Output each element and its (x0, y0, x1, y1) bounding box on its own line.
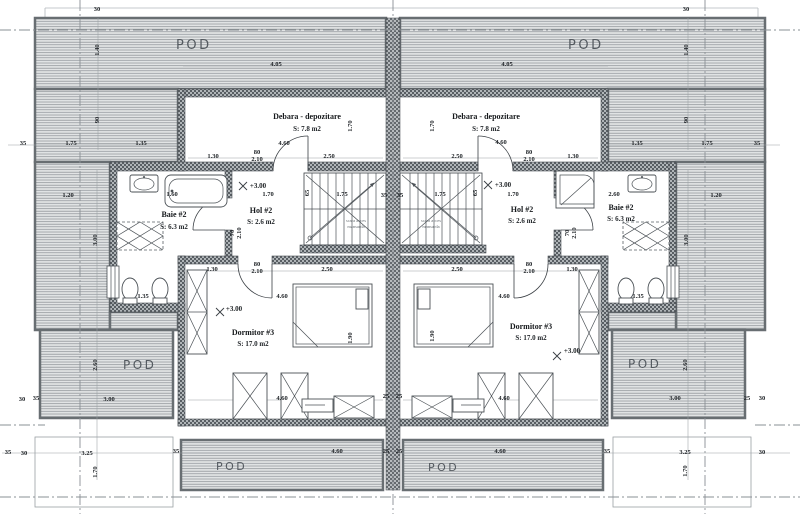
plan-text: POD (568, 38, 604, 53)
plan-text: 1.90 (429, 330, 436, 341)
plan-text: +3.00 (495, 181, 512, 189)
plan-text: Hol #2 (250, 206, 272, 215)
plan-text: 1.30 (567, 153, 578, 160)
plan-text: 2.10 (523, 156, 534, 163)
wall (178, 89, 386, 97)
plan-text: 4.60 (498, 293, 509, 300)
plan-text: S: 7.8 m2 (472, 125, 500, 133)
plan-text: 2.10 (236, 227, 243, 238)
plan-text: 4.60 (494, 448, 505, 455)
plan-text: +3.00 (226, 305, 243, 313)
plan-text: 35 (604, 448, 611, 455)
window-bottom (334, 396, 374, 418)
plan-text: S: 2.6 m2 (247, 218, 275, 226)
plan-text: 1.40 (683, 44, 690, 55)
plan-text: 1.60 (166, 191, 177, 198)
wall (272, 256, 386, 264)
wall (178, 256, 238, 264)
plan-text: 4.60 (498, 395, 509, 402)
plan-text: mansarda (347, 224, 364, 229)
plan-text: 1.40 (94, 44, 101, 55)
plan-text: 80 (526, 261, 533, 268)
plan-text: 90 (683, 117, 690, 124)
plan-text: scara acces (421, 218, 441, 223)
plan-text: 25 (396, 393, 403, 400)
plan-text: 1.20 (710, 192, 721, 199)
plan-text: S: 17.0 m2 (237, 340, 269, 348)
plan-text: 30 (21, 450, 28, 457)
plan-text: 35 (397, 192, 404, 199)
plan-text: 1.75 (701, 140, 713, 147)
plan-text: 25 (383, 393, 390, 400)
plan-text: 4.60 (495, 139, 506, 146)
plan-text: Dormitor #3 (232, 328, 274, 337)
plan-text: S: 7.8 m2 (293, 125, 321, 133)
plan-text: 35 (381, 192, 388, 199)
plan-text: 2.60 (608, 191, 619, 198)
plan-text: 80 (254, 149, 261, 156)
level-cross-icon (216, 308, 224, 316)
plan-text: 1.70 (347, 120, 354, 131)
bathroom-window (107, 266, 119, 298)
plan-text: 4.05 (501, 61, 513, 68)
pod-hatch-right-upper (608, 89, 765, 162)
plan-text: Debara - depozitare (273, 112, 341, 121)
plan-text: 4.60 (276, 293, 287, 300)
plan-text: 1.35 (137, 293, 149, 300)
pod-hatch-left-lower-link (110, 312, 178, 330)
pod-hatch-dormer-roof-left (181, 440, 383, 490)
vanity-cabinet (117, 222, 163, 250)
plan-text: 1.35 (632, 293, 644, 300)
wall (308, 162, 386, 171)
plan-text: POD (176, 38, 212, 53)
plan-text: 1.75 (434, 191, 446, 198)
plan-text: scara acces (346, 218, 366, 223)
bidet (152, 278, 168, 304)
floor-plan-canvas: PODPODPODPODPODPODDebara - depozitareS: … (0, 0, 800, 514)
plan-text: 4.05 (270, 61, 282, 68)
wall (110, 162, 273, 171)
plan-text: 25 (396, 448, 403, 455)
pod-hatch-left-upper (35, 89, 178, 162)
wall (178, 419, 386, 426)
plan-text: 2.50 (451, 153, 462, 160)
plan-text: 2.10 (571, 227, 578, 238)
plan-text: 35 (33, 395, 40, 402)
plan-text: 30 (19, 396, 26, 403)
plan-text: 25 (383, 448, 390, 455)
plan-text: +3.00 (250, 182, 267, 190)
plan-text: POD (628, 357, 661, 371)
plan-text: 4.60 (278, 140, 289, 147)
floor-plan-page: PODPODPODPODPODPODDebara - depozitareS: … (0, 0, 800, 514)
plan-text: 2.50 (321, 266, 332, 273)
bed (293, 284, 372, 347)
plan-text: Baie #2 (608, 203, 633, 212)
plan-text: 70 (229, 230, 236, 237)
plan-text: 2.50 (451, 266, 462, 273)
plan-text: 35 (5, 449, 12, 456)
plan-text: 80 (254, 261, 261, 268)
plan-text: Baie #2 (161, 210, 186, 219)
plan-text: Hol #2 (511, 205, 533, 214)
plan-text: 1.30 (207, 153, 218, 160)
plan-text: 1.20 (62, 192, 73, 199)
plan-text: 2.60 (682, 359, 689, 370)
plan-text: 4.60 (276, 395, 287, 402)
plan-text: 3.25 (679, 449, 691, 456)
plan-text: 2.60 (92, 359, 99, 370)
plan-text: 1.90 (347, 332, 354, 343)
plan-text: S: 2.6 m2 (508, 217, 536, 225)
plan-text: 25 (744, 395, 751, 402)
plan-text: 1.75 (336, 191, 348, 198)
wall (110, 303, 185, 312)
pod-hatch-right-lower-link (608, 312, 676, 330)
plan-text: 1.70 (92, 466, 99, 477)
level-cross-icon (239, 182, 247, 190)
pod-hatch-top-left (35, 18, 386, 89)
plan-text: 1.30 (566, 266, 577, 273)
plan-text: +3.00 (564, 347, 581, 355)
plan-text: 1.35 (631, 140, 643, 147)
wall (178, 89, 185, 171)
plan-text: Dormitor #3 (510, 322, 552, 331)
plan-text: 4.60 (331, 448, 342, 455)
plan-text: 30 (759, 395, 766, 402)
pod-hatch-bottom-right-box (612, 330, 745, 418)
plan-text: Debara - depozitare (452, 112, 520, 121)
plan-text: 65 (472, 189, 479, 196)
plan-text: 2.50 (323, 153, 334, 160)
wardrobe (187, 270, 207, 354)
plan-text: 30 (94, 6, 101, 13)
plan-text: POD (216, 460, 247, 473)
plan-text: 1.70 (429, 120, 436, 131)
plan-text: 35 (754, 140, 761, 147)
plan-text: 3.00 (683, 234, 690, 245)
washbasin (130, 175, 158, 192)
plan-text: 90 (94, 117, 101, 124)
plan-text: 1.70 (507, 191, 518, 198)
plan-text: S: 6.3 m2 (160, 223, 188, 231)
staircase (304, 173, 386, 245)
plan-text: 30 (759, 449, 766, 456)
plan-text: 1.70 (682, 465, 689, 476)
plan-text: S: 17.0 m2 (515, 334, 547, 342)
plan-text: 3.00 (103, 396, 114, 403)
plan-text: 1.35 (135, 140, 147, 147)
plan-text: S: 6.3 m2 (607, 215, 635, 223)
plan-text: POD (123, 358, 156, 372)
plan-text: POD (428, 461, 459, 474)
level-cross-icon (553, 352, 561, 360)
pod-hatch-bottom-left-box (40, 330, 173, 418)
plan-text: 1.30 (206, 266, 217, 273)
plan-text: 3.00 (669, 395, 680, 402)
plan-text: 2.10 (523, 268, 534, 275)
wall (300, 245, 386, 253)
plan-text: 30 (683, 6, 690, 13)
plan-text: 35 (173, 448, 180, 455)
pod-hatch-top-right (400, 18, 765, 89)
plan-text: 70 (564, 230, 571, 237)
plan-text: 35 (20, 140, 27, 147)
dormer-window (233, 373, 308, 419)
plan-text: 80 (526, 149, 533, 156)
plan-text: 2.10 (251, 268, 262, 275)
plan-text: 1.75 (65, 140, 77, 147)
wall (178, 256, 185, 426)
shower (556, 171, 594, 208)
plan-text: 1.70 (262, 191, 273, 198)
desk (302, 399, 333, 412)
plan-text: 3.25 (81, 450, 93, 457)
plan-text: 65 (304, 189, 311, 196)
plan-text: 2.10 (251, 156, 262, 163)
plan-text: mansarda (422, 224, 439, 229)
plan-text: 3.00 (92, 234, 99, 245)
toilet (122, 278, 138, 304)
level-cross-icon (484, 181, 492, 189)
